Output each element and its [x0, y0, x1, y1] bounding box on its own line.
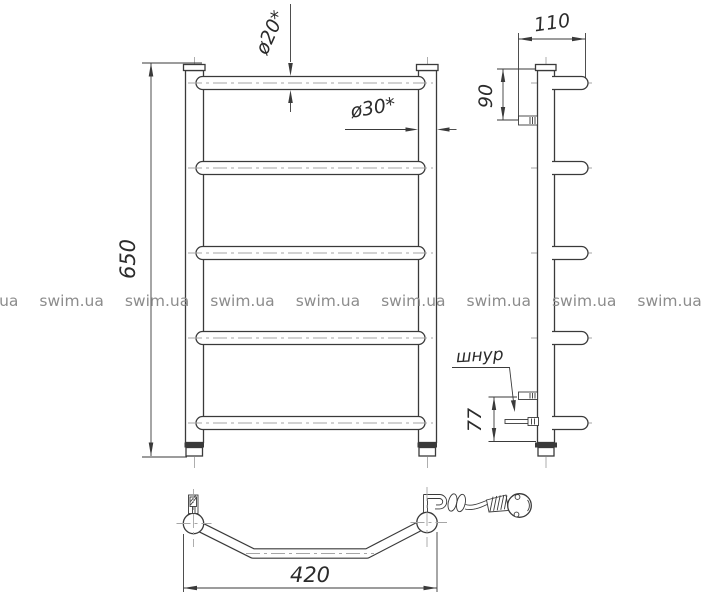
side-post [535, 65, 557, 457]
cord-and-plug [424, 493, 532, 517]
top-wall-bracket [519, 116, 538, 125]
bottom-wall-bracket [519, 392, 538, 400]
dim-post-diameter-label: ø30* [348, 93, 397, 123]
rung-stub [552, 77, 588, 90]
cord-label: шнур [455, 345, 504, 367]
dim-depth-label: 110 [533, 10, 572, 37]
dimension-d20: ø20* [251, 4, 293, 112]
dimension-d30: ø30* [345, 93, 457, 131]
rung-stub [552, 247, 588, 260]
rung-stub [552, 162, 588, 175]
left-post [184, 65, 206, 457]
dim-top-offset-label: 90 [475, 84, 497, 108]
rung-stub [552, 417, 588, 430]
side-view: 110 90 77 шнур [452, 10, 592, 468]
rung-stub [552, 332, 588, 345]
cord-exit [505, 418, 539, 426]
dim-cord-offset-label: 77 [464, 408, 486, 432]
dim-width-label: 420 [290, 563, 330, 587]
strain-relief [487, 495, 509, 512]
rung-stubs [552, 77, 588, 430]
right-post [417, 65, 439, 457]
cord-callout: шнур [452, 345, 516, 412]
dimension-90: 90 [475, 69, 536, 120]
front-view: 650 ø20* ø30* [116, 4, 457, 468]
plug-pin [514, 512, 519, 517]
technical-drawing: 650 ø20* ø30* [0, 0, 712, 600]
plug-pin [515, 495, 520, 500]
dim-height-label: 650 [116, 239, 140, 279]
power-plug [508, 494, 532, 518]
dim-rung-diameter-label: ø20* [251, 7, 290, 58]
top-view: 420 [177, 487, 532, 592]
